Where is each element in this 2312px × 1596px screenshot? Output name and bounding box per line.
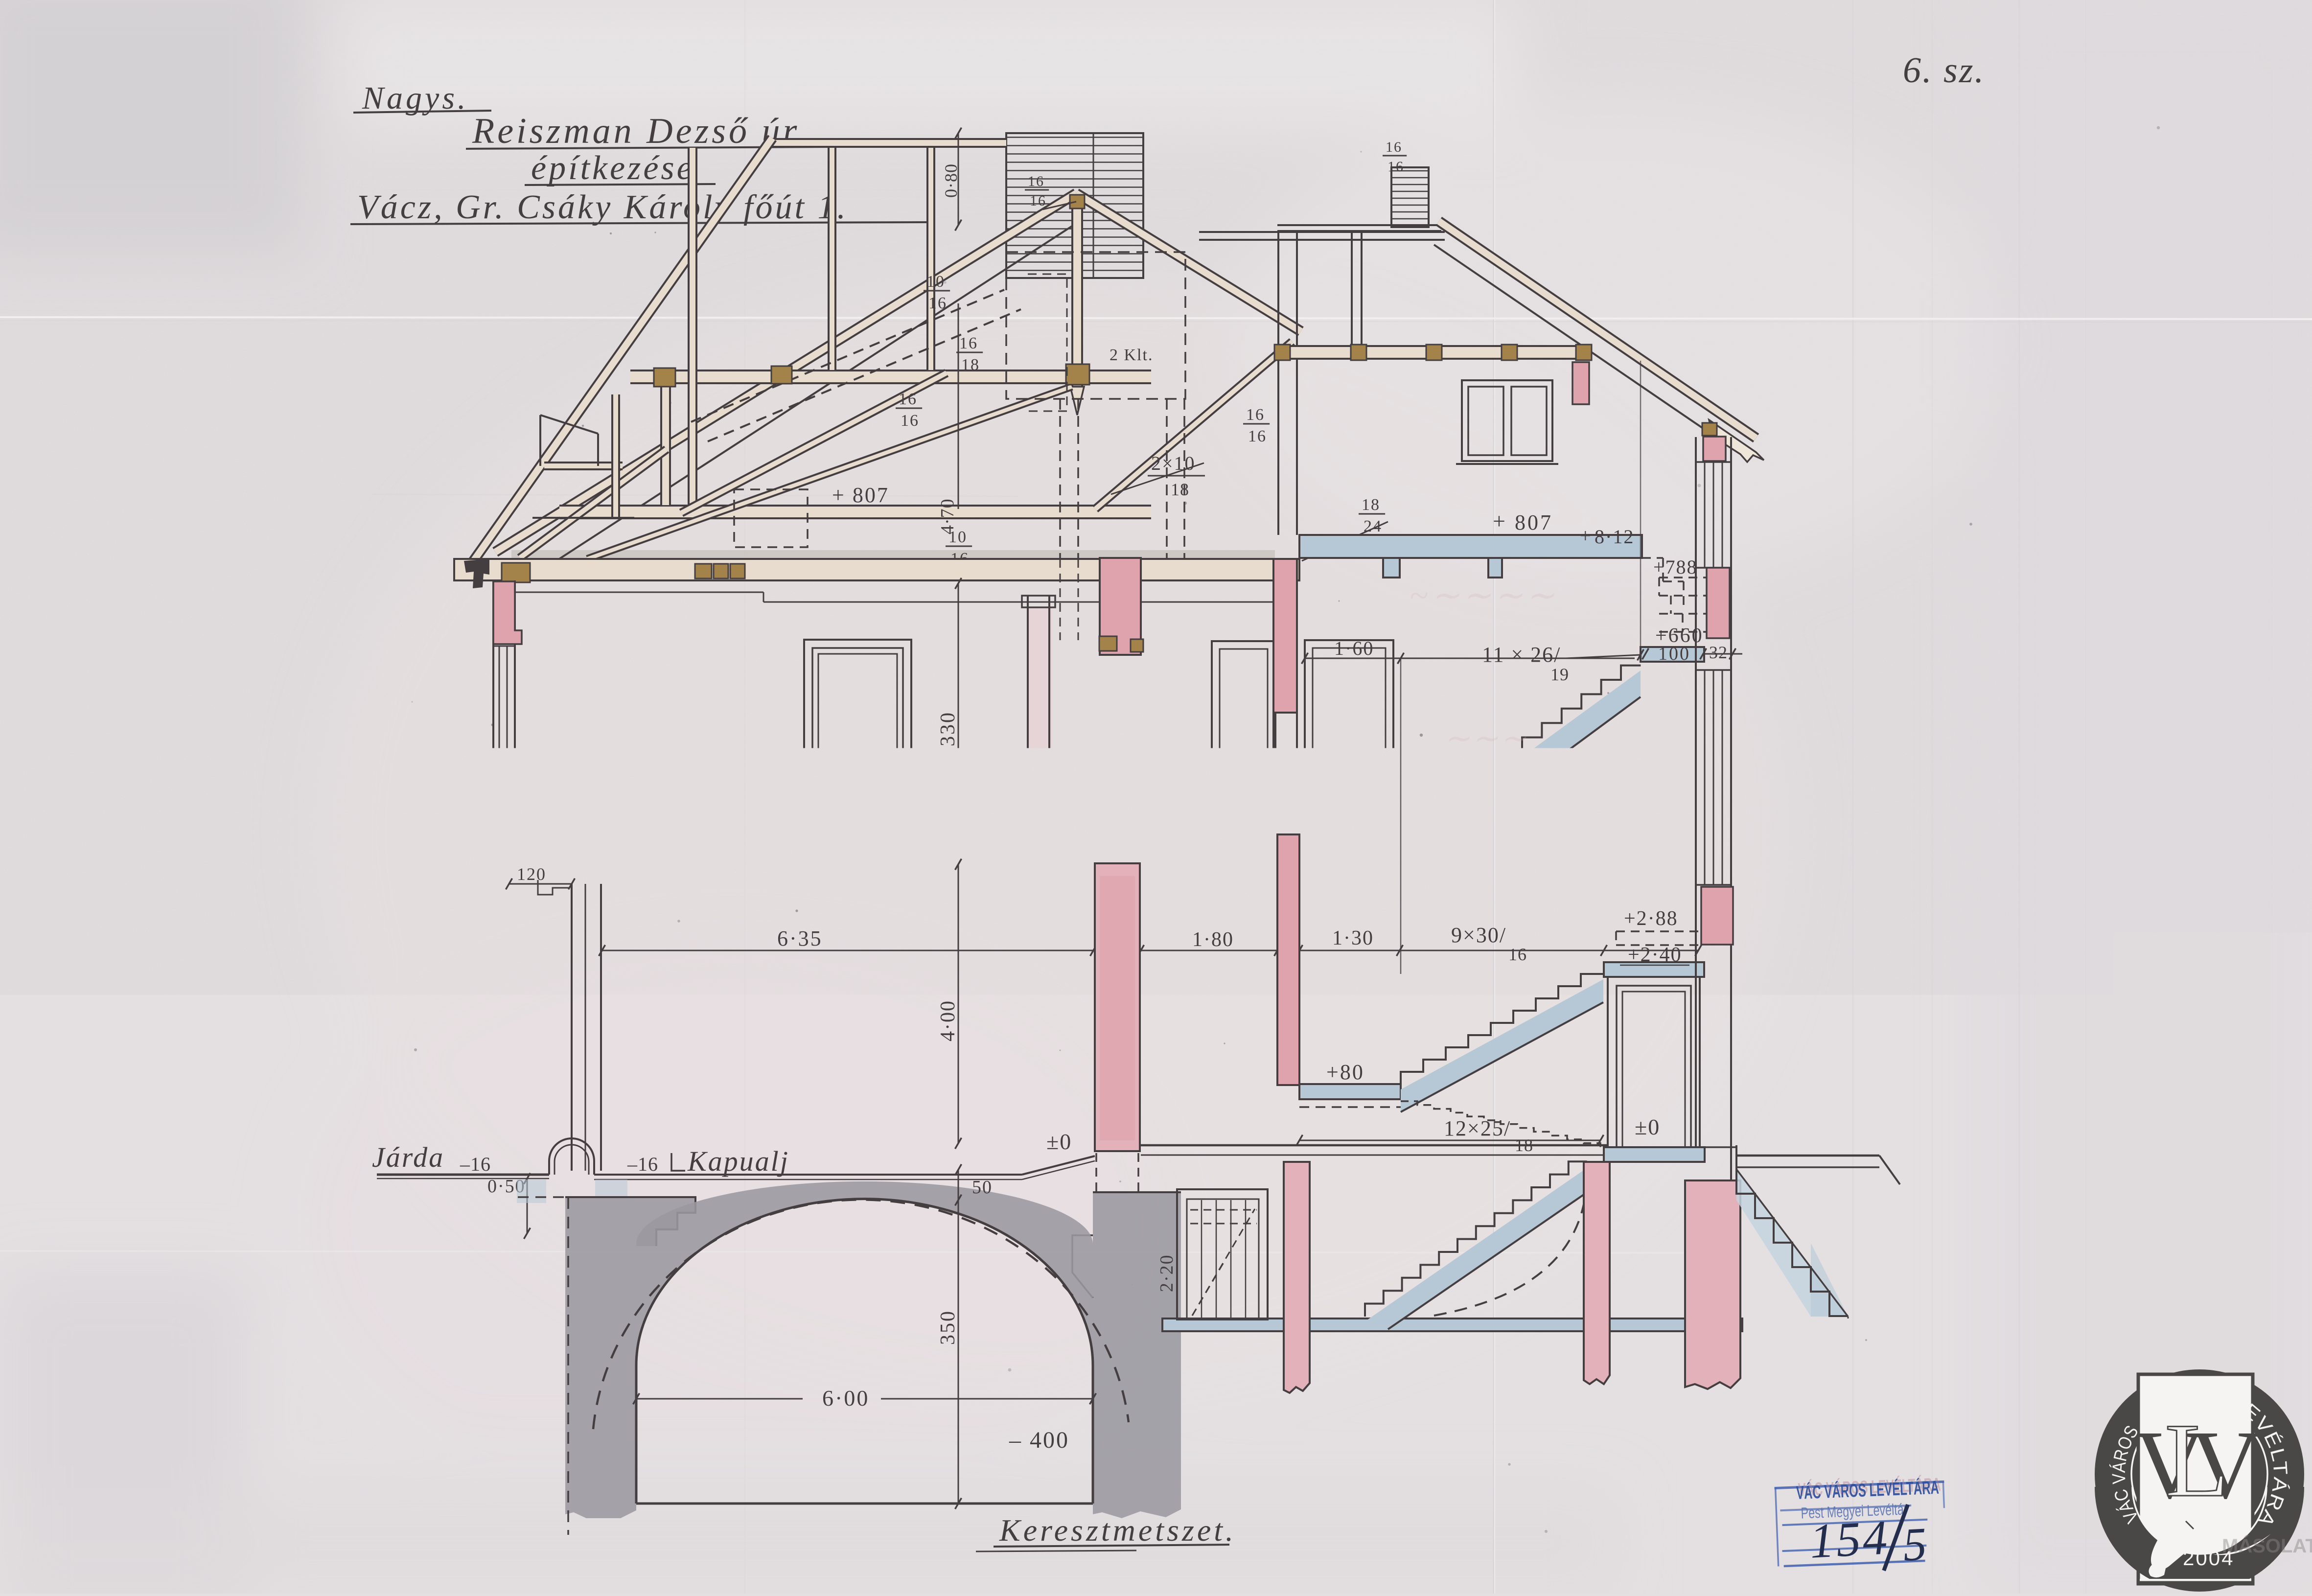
svg-text:4·00: 4·00 [937, 1000, 959, 1041]
svg-text:16: 16 [1387, 159, 1404, 175]
svg-text:16: 16 [1246, 406, 1265, 424]
svg-text:11 × 26/: 11 × 26/ [1482, 643, 1561, 667]
svg-text:∼∼∼: ∼∼∼ [1444, 721, 1528, 756]
svg-text:350: 350 [937, 1310, 959, 1345]
svg-text:16: 16 [899, 390, 917, 408]
svg-text:Vácz, Gr. Csáky Károly főút 1.: Vácz, Gr. Csáky Károly főút 1. [357, 188, 848, 226]
svg-text:2×10: 2×10 [1151, 452, 1196, 474]
svg-text:18: 18 [1171, 480, 1189, 499]
svg-text:9×30/: 9×30/ [1451, 923, 1506, 947]
svg-text:–16: –16 [627, 1153, 658, 1175]
svg-text:330: 330 [937, 711, 959, 746]
svg-text:~∼∼∼∼: ~∼∼∼∼ [1410, 577, 1557, 615]
svg-text:+80: +80 [1326, 1060, 1364, 1084]
svg-text:16: 16 [1386, 139, 1402, 155]
svg-text:120: 120 [517, 864, 546, 884]
svg-text:+: + [1580, 525, 1592, 547]
svg-text:4·70: 4·70 [937, 498, 958, 534]
svg-text:∼∼∼∼: ∼∼∼∼ [1405, 782, 1511, 814]
svg-text:16: 16 [1030, 193, 1046, 209]
svg-text:+2·40: +2·40 [1628, 944, 1682, 966]
svg-text:L: L [2165, 1402, 2229, 1519]
svg-text:8·12: 8·12 [1595, 526, 1634, 548]
svg-text:Járda: Járda [372, 1141, 444, 1173]
svg-text:±0: ±0 [1635, 1114, 1660, 1139]
svg-text:19: 19 [1550, 665, 1569, 684]
svg-text:+788: +788 [1653, 556, 1698, 578]
svg-text:Reiszman Dezső úr: Reiszman Dezső úr [472, 111, 800, 151]
svg-text:32: 32 [1709, 643, 1728, 662]
svg-text:6·35: 6·35 [777, 926, 823, 950]
svg-text:2·20: 2·20 [1156, 1254, 1177, 1292]
svg-text:16: 16 [1028, 173, 1044, 189]
svg-text:18: 18 [1362, 496, 1380, 514]
svg-text:807: 807 [1515, 510, 1553, 534]
svg-text:6·00: 6·00 [822, 1386, 869, 1411]
svg-text:±0: ±0 [1046, 1129, 1072, 1154]
svg-text:+ 807: + 807 [832, 483, 889, 507]
svg-text:+ 432: + 432 [730, 801, 792, 826]
svg-text:építkezése: építkezése [531, 149, 694, 187]
svg-text:154: 154 [1808, 1510, 1891, 1568]
svg-text:Kapualj: Kapualj [687, 1145, 789, 1177]
svg-text:– 400: – 400 [1009, 1427, 1069, 1453]
svg-text:+2·88: +2·88 [1624, 907, 1678, 930]
svg-text:16: 16 [901, 412, 919, 430]
svg-text:MÁSOLAT KLÜS: MÁSOLAT KLÜS [2222, 1535, 2312, 1557]
svg-text:50: 50 [972, 1177, 993, 1198]
svg-text:16: 16 [959, 334, 978, 352]
svg-text:2 Klt.: 2 Klt. [1110, 346, 1153, 364]
svg-text:16: 16 [928, 294, 947, 312]
svg-text:+: + [1493, 509, 1506, 533]
svg-text:1·60: 1·60 [1334, 637, 1374, 659]
svg-text:–16: –16 [460, 1153, 491, 1175]
svg-text:16: 16 [1508, 945, 1527, 964]
svg-text:12×25/: 12×25/ [1444, 1116, 1511, 1140]
svg-text:18: 18 [961, 356, 980, 374]
svg-text:5: 5 [1902, 1517, 1928, 1571]
svg-text:10: 10 [926, 273, 945, 291]
svg-text:100: 100 [1658, 644, 1690, 664]
svg-text:6. sz.: 6. sz. [1903, 50, 1985, 91]
svg-text:32: 32 [942, 835, 964, 857]
svg-text:1·80: 1·80 [1192, 928, 1234, 951]
svg-text:Keresztmetszet.: Keresztmetszet. [999, 1513, 1236, 1548]
svg-text:16: 16 [1248, 427, 1267, 445]
svg-text:1·30: 1·30 [1332, 927, 1374, 949]
